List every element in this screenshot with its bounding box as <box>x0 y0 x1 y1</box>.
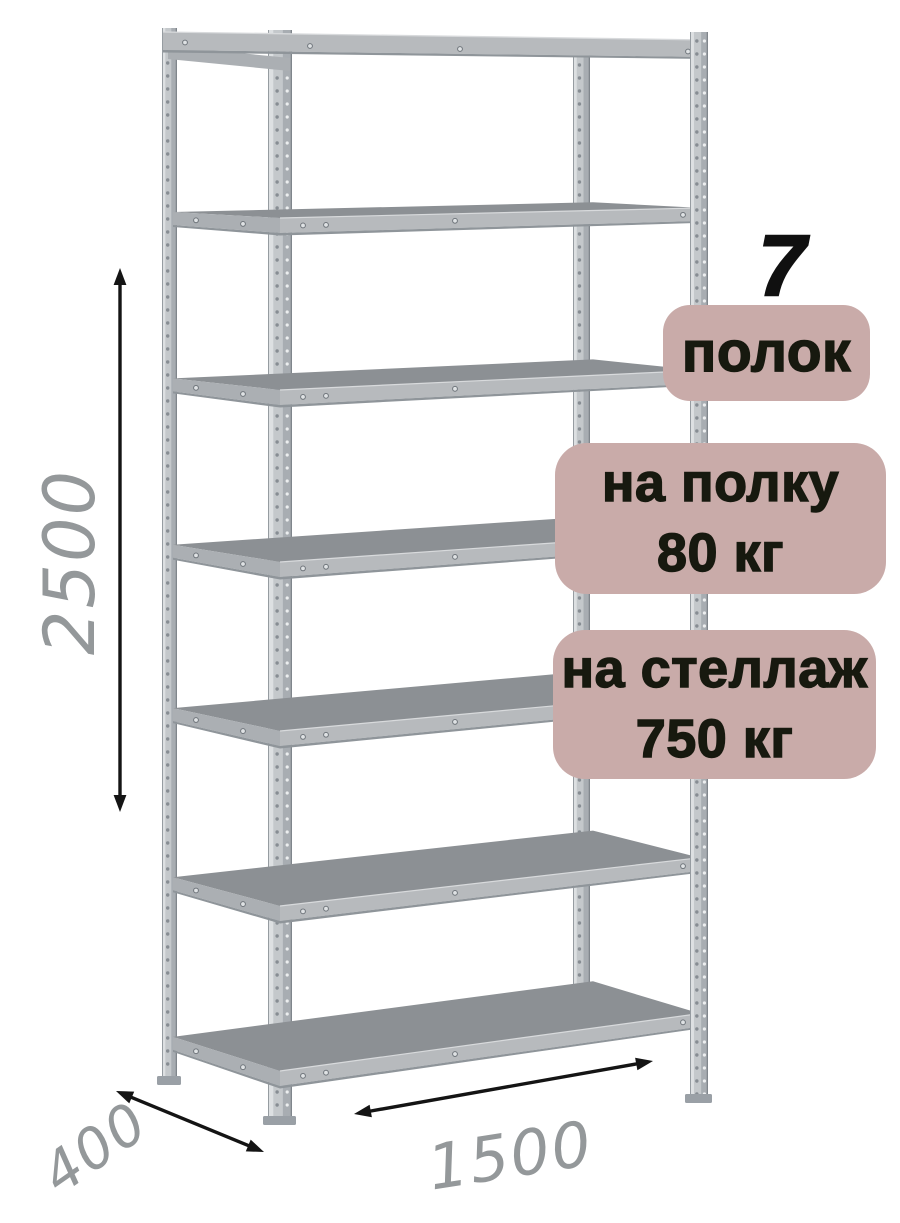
shelving-rack-illustration <box>0 0 900 1200</box>
rack-load-badge: на стеллаж 750 кг <box>553 630 876 779</box>
shelf-load-badge: на полку 80 кг <box>555 443 886 594</box>
foot-left-back <box>157 1076 181 1085</box>
foot-left-front <box>263 1116 296 1125</box>
shelf-load-line1: на полку <box>602 449 839 518</box>
shelf-6 <box>173 831 700 924</box>
shelf-count-badge: полок <box>663 305 870 401</box>
shelf-count-number: 7 <box>712 220 852 312</box>
shelf-7 <box>173 981 700 1088</box>
height-dimension-arrow <box>114 268 127 812</box>
shelf-load-line2: 80 кг <box>657 519 784 588</box>
height-dimension-label: 2500 <box>30 457 110 667</box>
product-image: 7 полок на полку 80 кг на стеллаж 750 кг… <box>0 0 900 1200</box>
rack-load-line2: 750 кг <box>636 705 794 774</box>
shelf-top-beam <box>163 32 708 71</box>
shelf-3 <box>173 359 700 407</box>
rack-load-line1: на стеллаж <box>561 635 867 704</box>
shelf-count-label: полок <box>682 319 851 386</box>
foot-right-front <box>685 1094 712 1103</box>
shelf-2 <box>173 202 700 235</box>
